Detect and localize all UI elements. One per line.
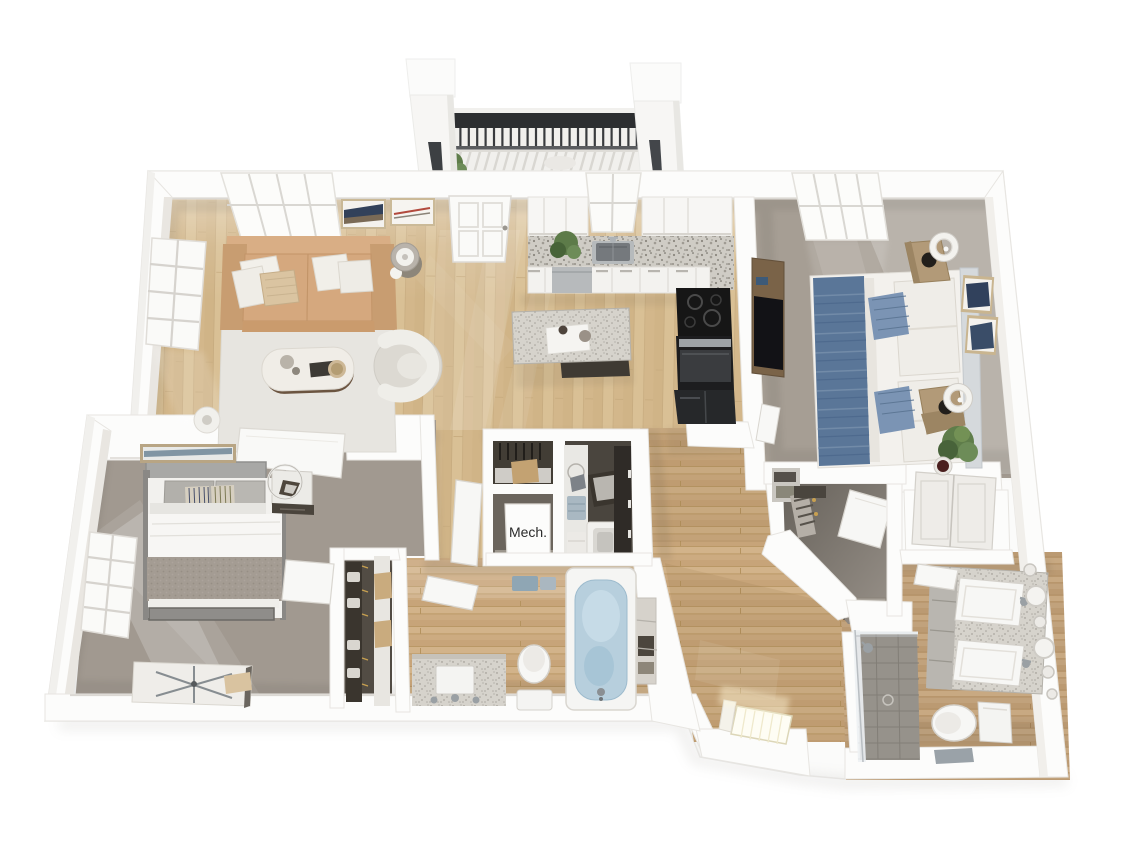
svg-text:Mech.: Mech. bbox=[509, 524, 547, 540]
